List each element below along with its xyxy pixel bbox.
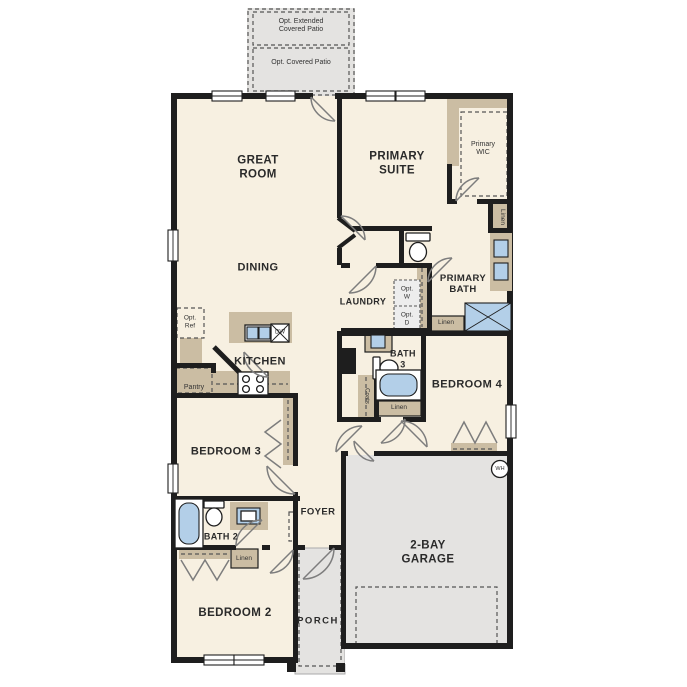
label-linen-bath2: Linen bbox=[236, 555, 252, 563]
label-primary-wic: Primary WIC bbox=[471, 141, 495, 158]
label-dining: DINING bbox=[238, 262, 279, 275]
label-linen-bath3: Linen bbox=[391, 404, 407, 412]
floor-plan-drawing bbox=[0, 0, 687, 687]
bathtub-bath2 bbox=[175, 499, 203, 548]
label-garage: 2-BAY GARAGE bbox=[402, 539, 455, 566]
label-opt-covered-patio: Opt. Covered Patio bbox=[271, 59, 331, 67]
bathtub-bath3 bbox=[376, 370, 421, 400]
label-dishwasher: DW bbox=[275, 329, 285, 336]
label-linen-primary: Linen bbox=[498, 209, 506, 225]
label-kitchen: KITCHEN bbox=[234, 356, 286, 369]
floor-plan: Opt. Extended Covered Patio Opt. Covered… bbox=[0, 0, 687, 687]
label-laundry: LAUNDRY bbox=[340, 297, 386, 308]
label-bedroom4: BEDROOM 4 bbox=[432, 379, 502, 392]
label-opt-dryer: Opt. D bbox=[401, 311, 413, 326]
label-bedroom2: BEDROOM 2 bbox=[198, 607, 271, 621]
label-primary-suite: PRIMARY SUITE bbox=[369, 150, 424, 177]
primary-vanity-sinks bbox=[490, 233, 512, 291]
island-sink bbox=[245, 325, 271, 341]
porch-post-right bbox=[336, 663, 345, 672]
porch-post-left bbox=[287, 663, 296, 672]
label-primary-bath: PRIMARY BATH bbox=[440, 273, 486, 295]
wic-shelf-top bbox=[447, 99, 511, 108]
label-bedroom3: BEDROOM 3 bbox=[191, 446, 261, 459]
kitchen-cabinet bbox=[180, 338, 202, 366]
label-pantry: Pantry bbox=[184, 384, 204, 392]
label-linen-hall: Linen bbox=[438, 319, 454, 327]
label-coats: Coats bbox=[362, 388, 369, 404]
label-bath3: BATH 3 bbox=[390, 348, 416, 369]
toilet-bath2 bbox=[204, 501, 224, 526]
label-foyer: FOYER bbox=[301, 506, 336, 517]
porch-floor bbox=[295, 548, 345, 674]
label-bath2: BATH 2 bbox=[204, 532, 238, 543]
label-porch: PORCH bbox=[297, 615, 339, 626]
label-opt-extended-patio: Opt. Extended Covered Patio bbox=[279, 18, 324, 35]
background-patch bbox=[345, 649, 513, 664]
label-great-room: GREAT ROOM bbox=[237, 154, 278, 181]
label-opt-ref: Opt. Ref bbox=[184, 314, 196, 329]
label-opt-washer: Opt. W bbox=[401, 285, 413, 300]
bath3-sink bbox=[371, 335, 385, 348]
wic-shelf-left bbox=[447, 108, 459, 166]
bath2-sink bbox=[237, 508, 260, 524]
shower bbox=[465, 303, 511, 331]
label-water-heater: WH bbox=[495, 466, 504, 472]
stove bbox=[238, 372, 268, 395]
